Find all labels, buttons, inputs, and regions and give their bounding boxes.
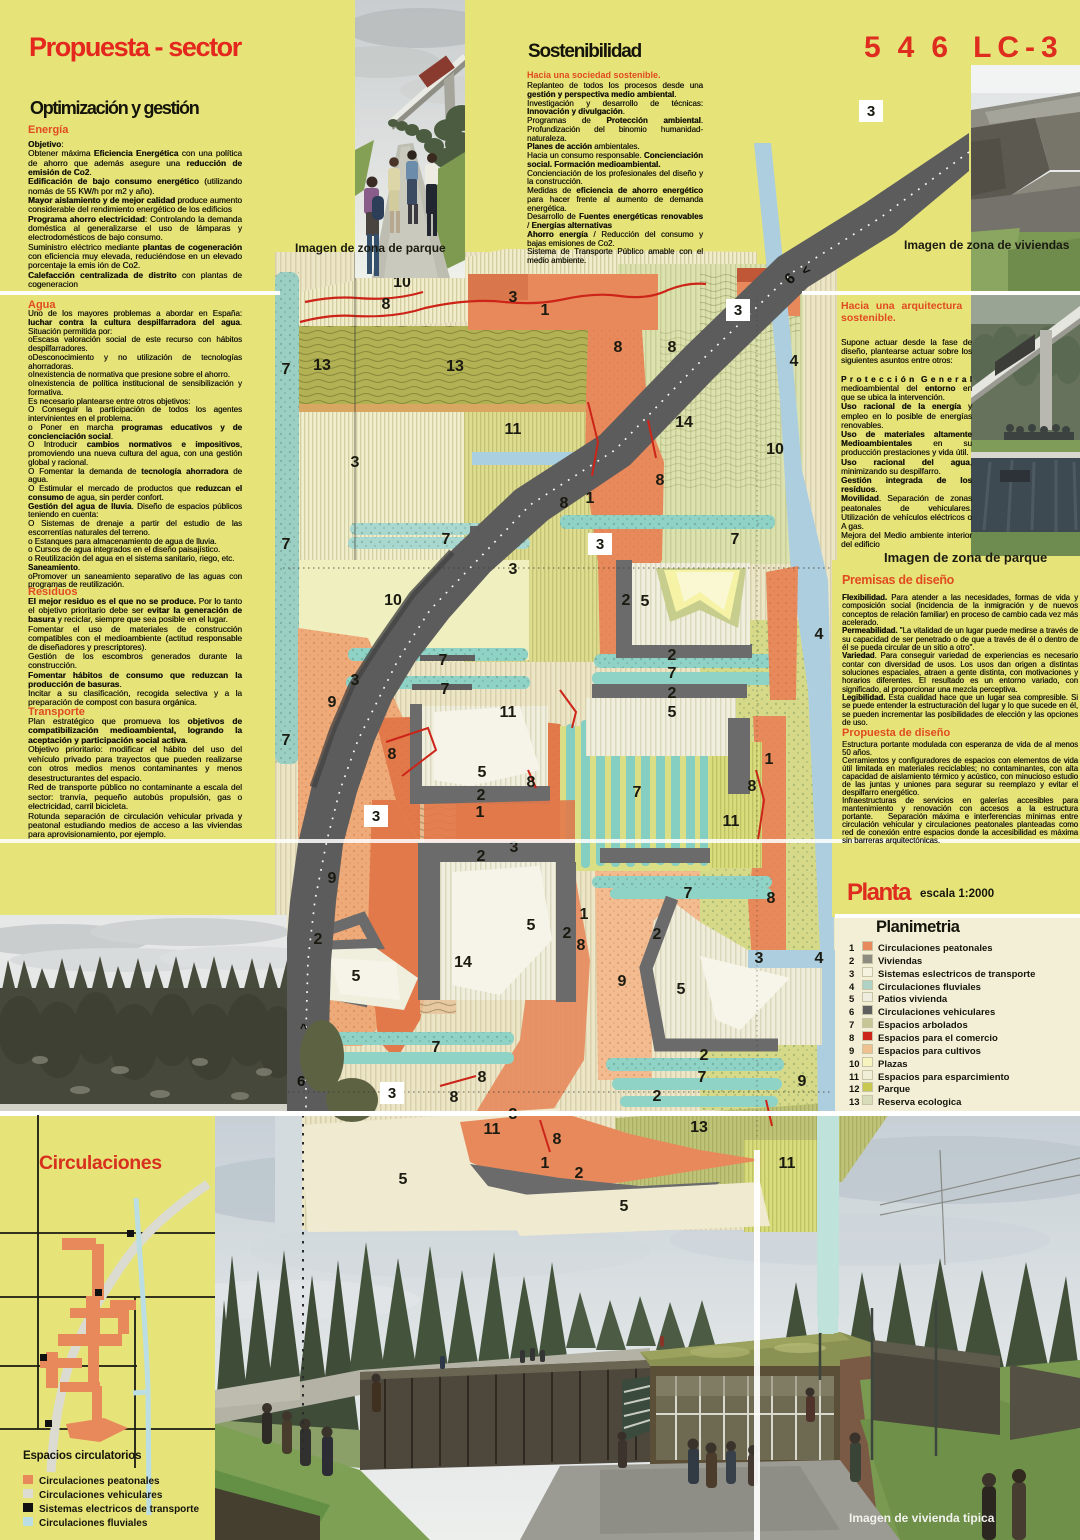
svg-text:5: 5	[620, 1198, 629, 1215]
svg-text:2: 2	[575, 1165, 584, 1182]
svg-text:13: 13	[690, 1119, 708, 1136]
svg-text:8: 8	[767, 890, 776, 907]
svg-text:8: 8	[553, 1131, 562, 1148]
svg-text:14: 14	[454, 954, 472, 971]
svg-text:7: 7	[441, 681, 450, 698]
svg-text:7: 7	[668, 665, 677, 682]
svg-text:7: 7	[731, 531, 740, 548]
svg-text:13: 13	[313, 357, 331, 374]
svg-text:5: 5	[399, 1171, 408, 1188]
svg-text:3: 3	[509, 561, 518, 578]
svg-text:2: 2	[563, 925, 572, 942]
svg-text:10: 10	[766, 441, 784, 458]
svg-text:1: 1	[765, 751, 774, 768]
svg-text:4: 4	[815, 950, 824, 967]
svg-text:1: 1	[541, 302, 550, 319]
svg-text:14: 14	[675, 414, 693, 431]
svg-text:8: 8	[478, 1069, 487, 1086]
svg-text:3: 3	[351, 672, 360, 689]
svg-text:7: 7	[432, 1039, 441, 1056]
svg-text:3: 3	[596, 536, 604, 553]
svg-text:5: 5	[352, 968, 361, 985]
svg-text:1: 1	[541, 1155, 550, 1172]
svg-text:7: 7	[282, 732, 291, 749]
svg-text:2: 2	[668, 685, 677, 702]
svg-text:3: 3	[867, 103, 875, 120]
svg-text:11: 11	[500, 704, 517, 721]
svg-text:8: 8	[614, 339, 623, 356]
svg-text:13: 13	[446, 358, 464, 375]
svg-text:2: 2	[477, 787, 486, 804]
svg-text:8: 8	[668, 339, 677, 356]
svg-text:2: 2	[314, 931, 323, 948]
svg-text:8: 8	[656, 472, 665, 489]
svg-text:8: 8	[527, 774, 536, 791]
svg-text:3: 3	[755, 950, 764, 967]
svg-text:9: 9	[328, 694, 337, 711]
svg-text:3: 3	[734, 302, 742, 319]
svg-text:2: 2	[653, 926, 662, 943]
svg-text:2: 2	[622, 592, 631, 609]
svg-text:8: 8	[450, 1089, 459, 1106]
svg-text:2: 2	[668, 647, 677, 664]
svg-text:6: 6	[297, 1073, 305, 1090]
svg-text:3: 3	[372, 808, 380, 825]
svg-text:2: 2	[700, 1047, 709, 1064]
svg-text:5: 5	[478, 764, 487, 781]
svg-text:8: 8	[577, 937, 586, 954]
svg-text:9: 9	[618, 973, 627, 990]
svg-text:5: 5	[677, 981, 686, 998]
svg-text:3: 3	[509, 289, 518, 306]
svg-text:^: ^	[300, 1021, 307, 1035]
svg-text:8: 8	[560, 495, 569, 512]
svg-text:2: 2	[477, 848, 486, 865]
svg-text:8: 8	[388, 746, 397, 763]
svg-text:5: 5	[527, 917, 536, 934]
svg-text:10: 10	[384, 592, 402, 609]
svg-text:7: 7	[439, 652, 448, 669]
svg-text:7: 7	[442, 531, 451, 548]
svg-text:5: 5	[668, 704, 677, 721]
svg-text:1: 1	[476, 804, 485, 821]
svg-text:11: 11	[779, 1155, 796, 1172]
svg-text:3: 3	[351, 454, 360, 471]
svg-text:3: 3	[388, 1085, 396, 1102]
svg-text:11: 11	[484, 1121, 501, 1138]
svg-text:7: 7	[633, 784, 642, 801]
svg-text:11: 11	[505, 421, 522, 438]
svg-text:8: 8	[748, 778, 757, 795]
svg-text:4: 4	[815, 626, 824, 643]
svg-text:5: 5	[641, 593, 650, 610]
svg-text:9: 9	[798, 1073, 807, 1090]
svg-text:4: 4	[790, 353, 799, 370]
svg-text:11: 11	[723, 813, 740, 830]
svg-text:2: 2	[653, 1088, 662, 1105]
svg-text:7: 7	[282, 536, 291, 553]
svg-text:7: 7	[698, 1069, 707, 1086]
svg-text:1: 1	[580, 906, 589, 923]
svg-text:7: 7	[684, 885, 693, 902]
svg-text:7: 7	[282, 361, 291, 378]
svg-text:8: 8	[382, 296, 391, 313]
svg-text:9: 9	[328, 870, 337, 887]
svg-text:1: 1	[586, 490, 595, 507]
